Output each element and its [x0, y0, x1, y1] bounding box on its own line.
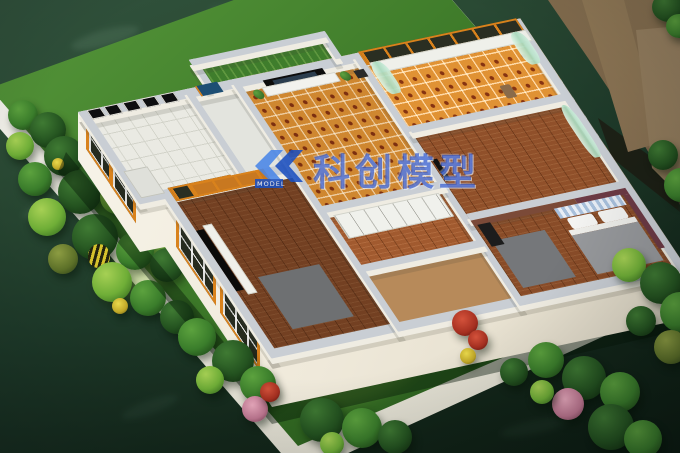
bush — [528, 342, 564, 378]
logo-model-text: MODEL — [257, 180, 285, 188]
bush — [6, 132, 34, 160]
bush — [654, 330, 680, 364]
bush — [530, 380, 554, 404]
bush — [626, 306, 656, 336]
flower-cluster — [112, 298, 128, 314]
watermark-brand-text: 科创模型 — [313, 142, 481, 196]
flower-cluster — [460, 348, 476, 364]
flower-cluster — [260, 382, 280, 402]
bush — [378, 420, 412, 453]
bush — [28, 198, 66, 236]
double-chevron-logo-icon: MODEL — [253, 146, 309, 194]
tree — [342, 408, 382, 448]
bush — [18, 162, 52, 196]
bush — [178, 318, 216, 356]
bush — [320, 432, 344, 453]
bush — [624, 420, 662, 453]
bush — [500, 358, 528, 386]
photo-architectural-model-scene: MODEL 科创模型 — [0, 0, 680, 453]
bush — [196, 366, 224, 394]
floor-speckle — [119, 390, 180, 424]
bush — [92, 262, 132, 302]
bush — [48, 244, 78, 274]
flower-tree — [552, 388, 584, 420]
flower-vine — [468, 330, 488, 350]
bush — [648, 140, 678, 170]
watermark: MODEL 科创模型 — [253, 140, 493, 198]
